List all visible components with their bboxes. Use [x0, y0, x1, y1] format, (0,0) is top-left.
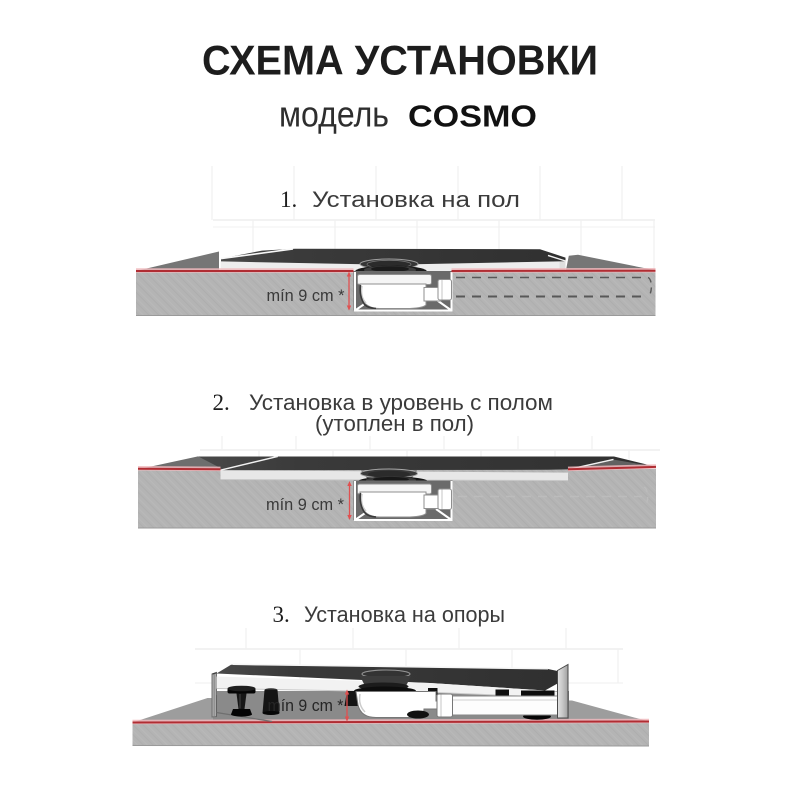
- svg-text:3.: 3.: [273, 602, 290, 627]
- svg-text:mín 9 cm *: mín 9 cm *: [266, 496, 345, 514]
- svg-text:mín 9 cm *: mín 9 cm *: [268, 697, 345, 715]
- svg-text:(утоплен в пол): (утоплен в пол): [315, 411, 474, 436]
- svg-text:1.: 1.: [280, 187, 297, 212]
- svg-text:COSMO: COSMO: [408, 99, 537, 134]
- svg-text:Установка на пол: Установка на пол: [312, 187, 520, 212]
- svg-text:Установка на опоры: Установка на опоры: [304, 602, 505, 627]
- svg-text:mín 9 cm *: mín 9 cm *: [267, 287, 346, 305]
- svg-text:2.: 2.: [213, 390, 230, 415]
- svg-text:СХЕМА УСТАНОВКИ: СХЕМА УСТАНОВКИ: [202, 37, 598, 84]
- svg-text:модель: модель: [279, 94, 389, 135]
